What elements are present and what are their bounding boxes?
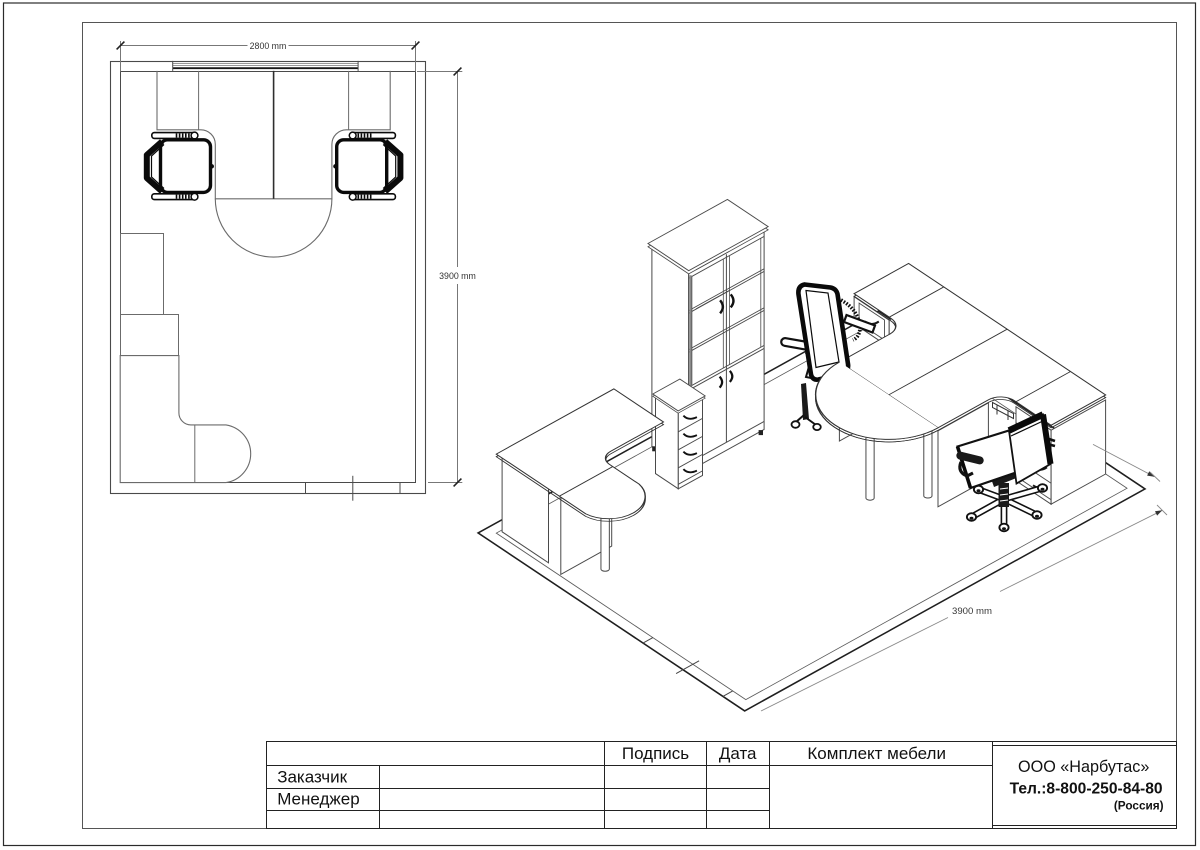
svg-text:Комплект мебели: Комплект мебели bbox=[807, 744, 946, 763]
svg-text:Подпись: Подпись bbox=[622, 744, 689, 763]
svg-text:ООО «Нарбутас»: ООО «Нарбутас» bbox=[1018, 758, 1149, 776]
svg-text:(Россия): (Россия) bbox=[1114, 799, 1164, 813]
svg-text:3900 mm: 3900 mm bbox=[952, 606, 992, 617]
svg-text:Менеджер: Менеджер bbox=[277, 790, 359, 809]
svg-text:3900 mm: 3900 mm bbox=[439, 271, 476, 281]
svg-text:Тел.:8-800-250-84-80: Тел.:8-800-250-84-80 bbox=[1010, 781, 1163, 798]
svg-text:Дата: Дата bbox=[719, 744, 757, 763]
svg-text:Заказчик: Заказчик bbox=[277, 768, 347, 787]
svg-text:2800 mm: 2800 mm bbox=[250, 41, 287, 51]
